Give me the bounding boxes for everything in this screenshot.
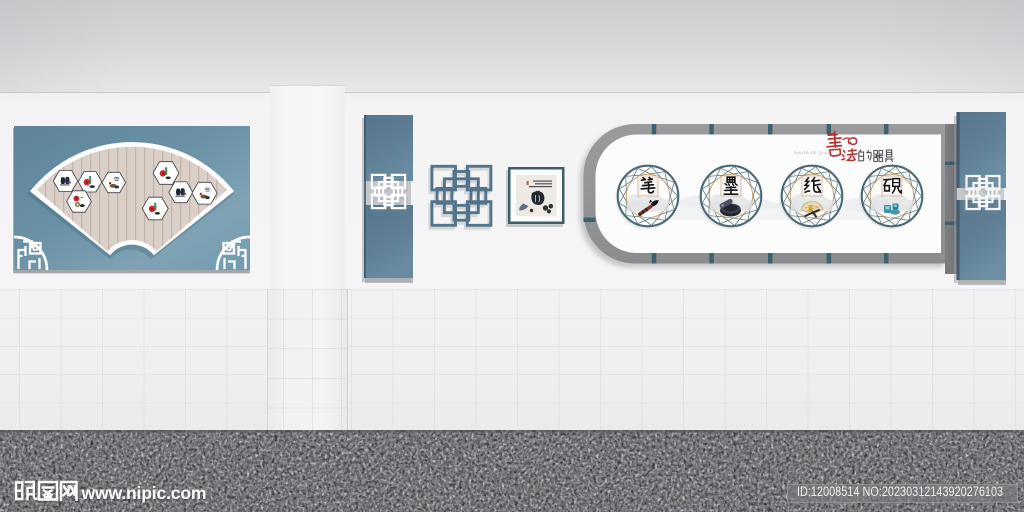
svg-text:SHUFA DE QIJU: SHUFA DE QIJU <box>794 151 829 155</box>
svg-text:www.nipic.com: www.nipic.com <box>81 483 207 503</box>
